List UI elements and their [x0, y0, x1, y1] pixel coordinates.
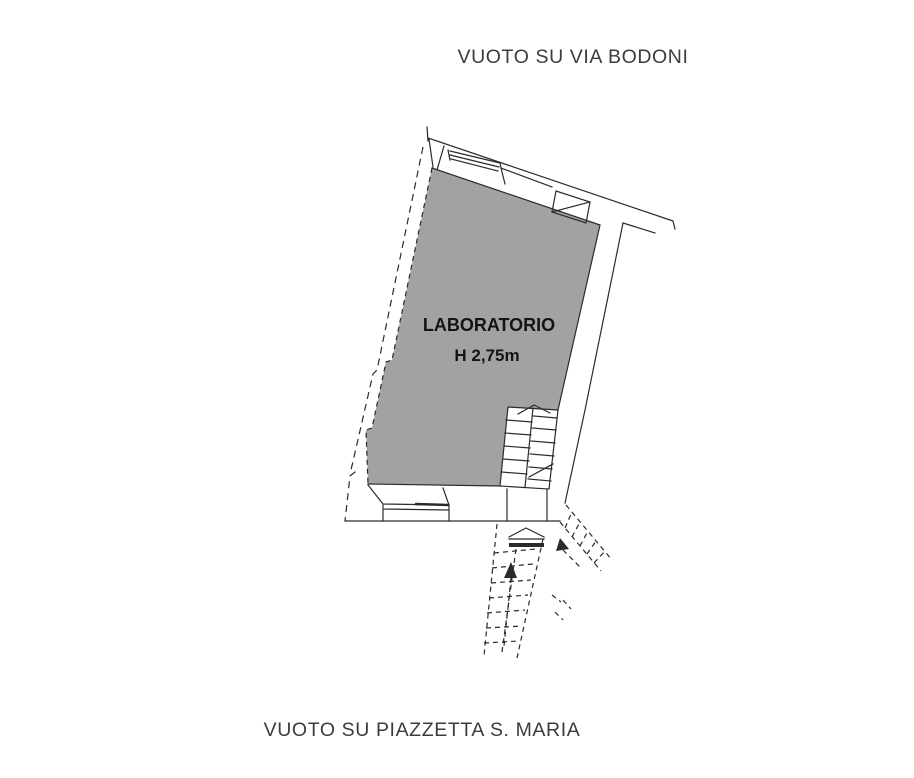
stair-arrow-right — [556, 538, 580, 567]
external-staircase-right — [552, 505, 612, 620]
room-name-label: LABORATORIO — [423, 315, 555, 335]
entrance-canopy — [509, 528, 544, 545]
room-height-label: H 2,75m — [454, 346, 519, 365]
floor-plan-page: VUOTO SU VIA BODONI VUOTO SU PIAZZETTA S… — [0, 0, 914, 778]
floor-plan-drawing: LABORATORIO H 2,75m — [0, 0, 914, 778]
exit-passage-walls — [507, 489, 547, 521]
internal-staircase — [500, 405, 558, 489]
stair-arrow-left — [504, 562, 517, 646]
bottom-window — [383, 504, 449, 521]
bottom-facade-wall — [345, 485, 560, 521]
